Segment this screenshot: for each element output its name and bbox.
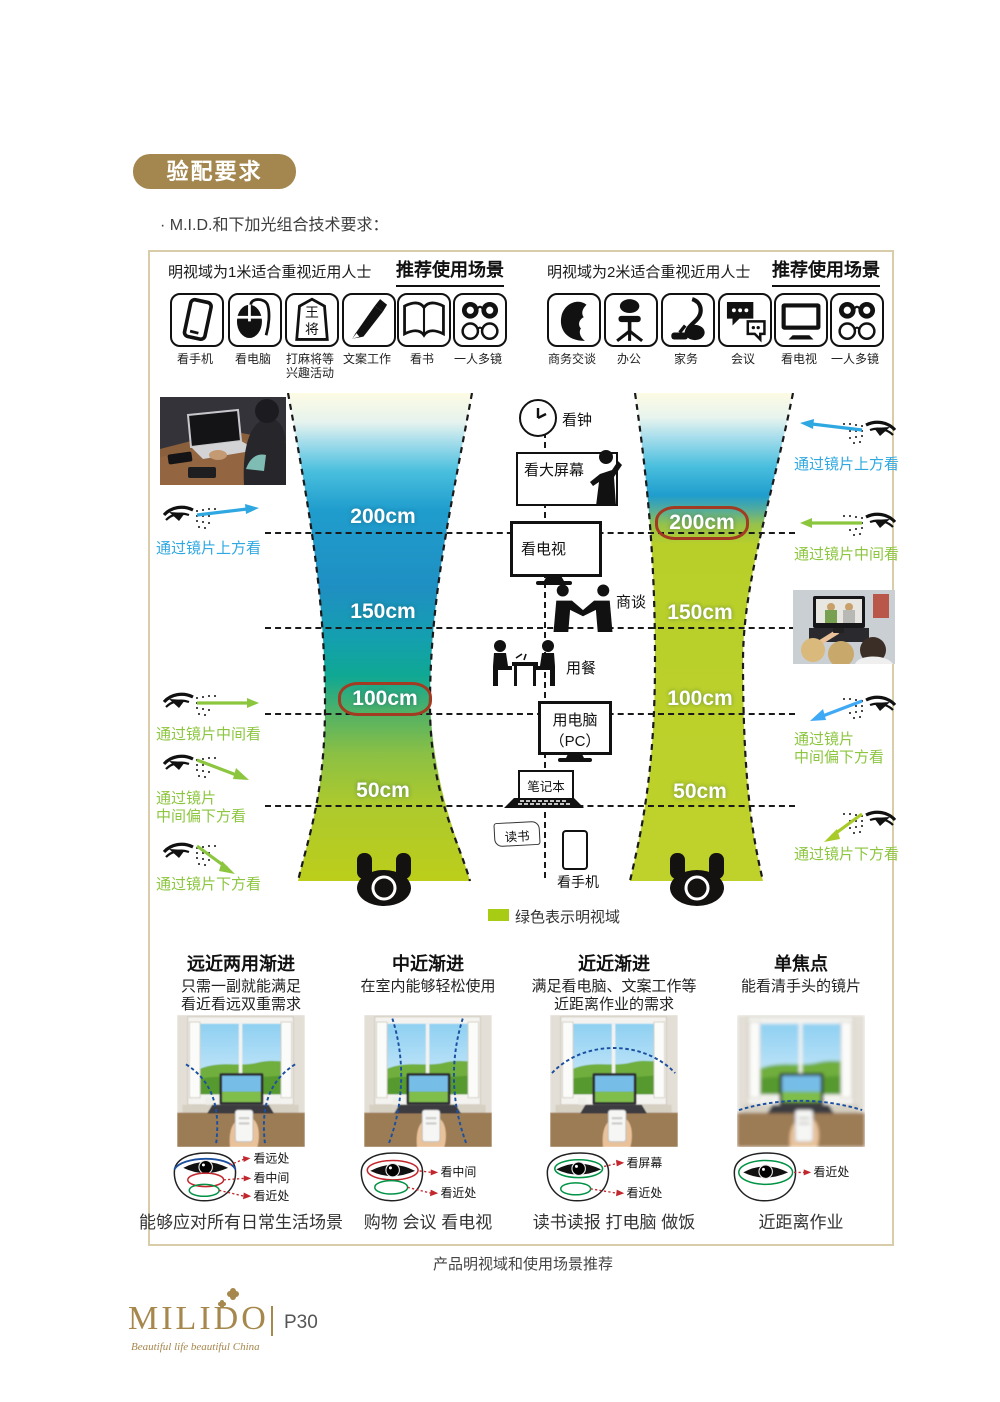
circled-distance: 100cm — [338, 682, 432, 716]
left-panel-title: 明视域为1米适合重视近用人士 — [168, 261, 371, 282]
glasses-icon — [830, 293, 884, 347]
icon-label: 看手机 — [163, 350, 227, 367]
dining-label: 用餐 — [566, 657, 596, 678]
svg-text:将: 将 — [305, 321, 319, 337]
negotiation-label: 商谈 — [616, 591, 646, 612]
distance-label: 150cm — [657, 601, 743, 625]
svg-text:看近处: 看近处 — [253, 1189, 289, 1203]
distance-label: 150cm — [340, 600, 426, 624]
family-tv-photo — [793, 590, 895, 664]
lens-type-title: 单焦点 — [708, 950, 894, 976]
tv-diagram-icon: 看电视 — [510, 521, 602, 577]
eye-middle-view-icon — [163, 690, 263, 724]
annotation-label: 通过镜片下方看 — [794, 846, 899, 864]
annotation-label: 通过镜片下方看 — [156, 876, 261, 894]
icon-label: 看电脑 — [221, 350, 285, 367]
laptop-label: 笔记本 — [520, 772, 572, 795]
lens-zones-diagram: 看近处 — [731, 1150, 881, 1206]
lens-zones-diagram: 看中间 看近处 — [358, 1150, 508, 1206]
reading-label: 读书 — [494, 822, 539, 846]
mouse-icon — [228, 293, 282, 347]
pc-icon: 用电脑 （PC） — [538, 701, 612, 755]
shogi-icon: 王将 — [285, 293, 339, 347]
right-panel-title: 明视域为2米适合重视近用人士 — [547, 261, 750, 282]
tv-icon — [774, 293, 828, 347]
eye-upper-view-icon — [796, 418, 896, 452]
left-vision-hourglass — [278, 393, 482, 905]
lens-type-title: 近近渐进 — [521, 950, 707, 976]
lens-type-caption: 近距离作业 — [681, 1208, 921, 1233]
icon-label: 一人多镜 — [823, 350, 887, 367]
circled-distance: 200cm — [655, 506, 749, 540]
lens-type-desc: 看近看远双重需求 — [131, 993, 351, 1014]
laptop-work-photo — [160, 397, 286, 485]
eye-midlower-view-icon — [163, 752, 263, 788]
icon-label: 商务交谈 — [540, 350, 604, 367]
book-icon — [397, 293, 451, 347]
distance-label: 50cm — [657, 780, 743, 804]
tv-diagram-label: 看电视 — [513, 524, 599, 559]
vision-scene-image — [550, 1015, 678, 1147]
brochure-page: 验配要求 · M.I.D.和下加光组合技术要求： 明视域为1米适合重视近用人士 … — [0, 0, 1000, 1402]
clock-icon — [519, 399, 557, 437]
svg-text:看中间: 看中间 — [253, 1170, 289, 1185]
pc-label-line2: （PC） — [541, 730, 609, 751]
dining-icon — [486, 636, 562, 688]
chat-icon — [718, 293, 772, 347]
annotation-label: 通过镜片上方看 — [156, 540, 261, 558]
eye-lower-view-icon — [796, 808, 896, 846]
icon-label: 一人多镜 — [446, 350, 510, 367]
profile-icon — [547, 293, 601, 347]
annotation-label: 通过镜片上方看 — [794, 456, 899, 474]
eye-upper-view-icon — [163, 503, 263, 537]
clock-label: 看钟 — [562, 409, 592, 430]
eye-lower-view-icon — [163, 840, 263, 878]
section-subtitle: · M.I.D.和下加光组合技术要求： — [160, 211, 388, 235]
distance-line-150cm — [265, 627, 795, 629]
icon-label: 看电视 — [767, 350, 831, 367]
right-vision-hourglass — [613, 393, 801, 905]
pc-stand — [552, 752, 598, 764]
vision-scene-image — [177, 1015, 305, 1147]
footer-divider — [271, 1306, 273, 1336]
lens-type-title: 中近渐进 — [335, 950, 521, 976]
lens-type-title: 远近两用渐进 — [148, 950, 334, 976]
page-number: P30 — [284, 1312, 318, 1334]
distance-label: 100cm — [657, 687, 743, 711]
vision-scene-image — [364, 1015, 492, 1147]
annotation-label: 通过镜片 — [156, 790, 216, 808]
laptop-icon: 笔记本 — [518, 770, 574, 800]
icon-label: 看书 — [390, 350, 454, 367]
distance-line-100cm — [265, 713, 795, 715]
annotation-label: 通过镜片中间看 — [794, 546, 899, 564]
svg-text:王: 王 — [305, 304, 319, 320]
phone-diagram-icon — [562, 830, 588, 870]
annotation-label: 通过镜片中间看 — [156, 726, 261, 744]
section-badge: 验配要求 — [133, 154, 296, 189]
vision-scene-image — [737, 1015, 865, 1147]
icon-label: 会议 — [711, 350, 775, 367]
brand-logo: MILIDO — [128, 1300, 269, 1338]
left-scenes-title: 推荐使用场景 — [396, 256, 504, 287]
negotiation-icon — [548, 583, 618, 633]
glasses-icon — [453, 293, 507, 347]
svg-text:看屏幕: 看屏幕 — [626, 1156, 662, 1170]
icon-label: 兴趣活动 — [278, 364, 342, 381]
figure-caption: 产品明视域和使用场景推荐 — [348, 1253, 698, 1274]
eye-midlower-view-icon — [796, 693, 896, 729]
eye-middle-view-icon — [796, 510, 896, 544]
laptop-keyboard — [504, 798, 584, 811]
right-scenes-title: 推荐使用场景 — [772, 256, 880, 287]
svg-text:看近处: 看近处 — [440, 1186, 476, 1200]
legend-label: 绿色表示明视域 — [515, 906, 620, 927]
pc-label-line1: 用电脑 — [541, 704, 609, 730]
chair-icon — [604, 293, 658, 347]
icon-label: 办公 — [597, 350, 661, 367]
svg-text:看近处: 看近处 — [813, 1165, 849, 1179]
svg-text:看近处: 看近处 — [626, 1186, 662, 1200]
annotation-label: 通过镜片 — [794, 731, 854, 749]
legend-swatch — [488, 909, 509, 921]
svg-text:看远处: 看远处 — [253, 1152, 289, 1166]
annotation-label: 中间偏下方看 — [794, 749, 884, 767]
vacuum-icon — [661, 293, 715, 347]
lens-zones-diagram: 看远处 看中间 看近处 — [171, 1150, 321, 1206]
clover-icon — [206, 1288, 246, 1310]
reading-icon: 读书 — [493, 821, 540, 847]
distance-label: 200cm — [340, 505, 426, 529]
annotation-label: 中间偏下方看 — [156, 808, 246, 826]
phone-diagram-label: 看手机 — [548, 872, 608, 892]
phone-icon — [170, 293, 224, 347]
pen-icon — [342, 293, 396, 347]
brand-tagline: Beautiful life beautiful China — [131, 1341, 260, 1353]
svg-text:看中间: 看中间 — [440, 1164, 476, 1179]
lens-type-desc: 近距离作业的需求 — [504, 993, 724, 1014]
icon-label: 家务 — [654, 350, 718, 367]
presenter-icon — [588, 448, 622, 506]
lens-zones-diagram: 看屏幕 看近处 — [544, 1150, 694, 1206]
distance-label: 50cm — [340, 779, 426, 803]
lens-type-desc: 能看清手头的镜片 — [691, 975, 911, 996]
person-topview-icon — [666, 851, 728, 907]
person-topview-icon — [353, 851, 415, 907]
